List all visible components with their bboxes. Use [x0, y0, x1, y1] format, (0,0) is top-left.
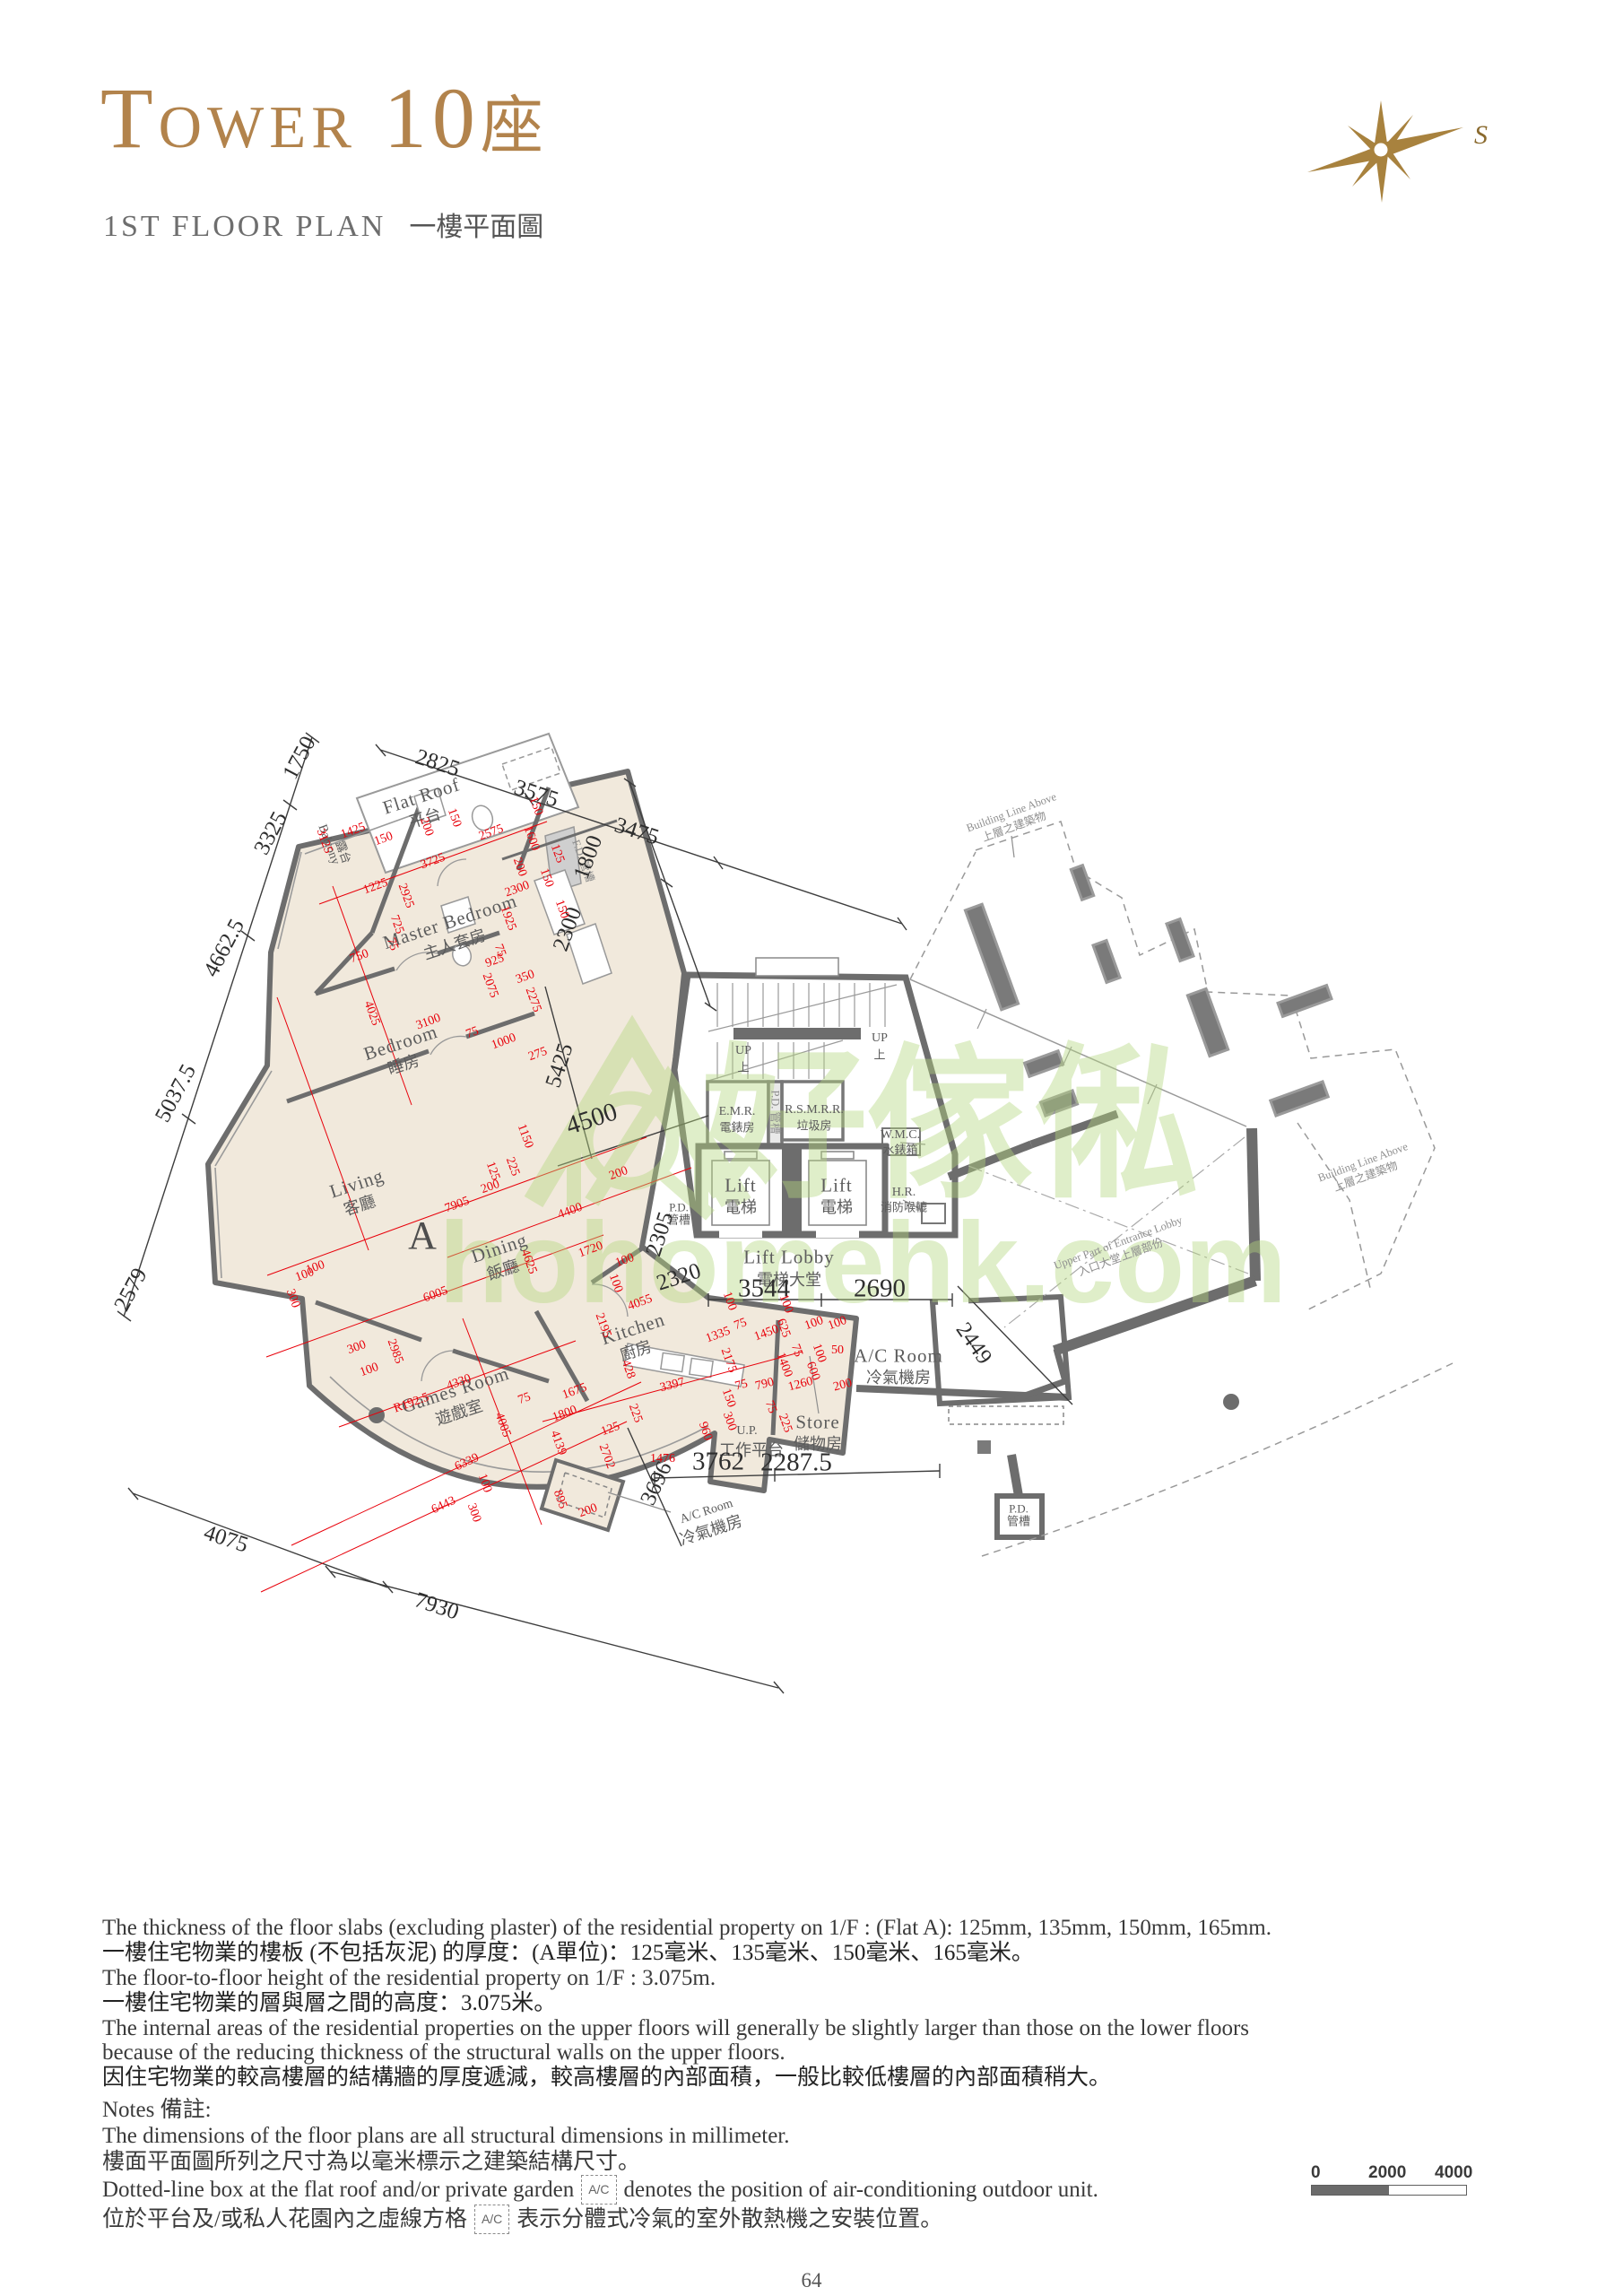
plan-label: 消防喉轆: [881, 1202, 927, 1213]
notes-legend-block: Notes 備註: The dimensions of the floor pl…: [102, 2097, 1304, 2234]
note-line: The floor-to-floor height of the residen…: [102, 1966, 1304, 1990]
plan-label: E.M.R.: [719, 1106, 756, 1118]
scale-tick-label: 4000: [1435, 2163, 1472, 2183]
plan-label: 100: [359, 1361, 381, 1379]
plan-label: 200: [480, 1178, 502, 1196]
plan-label: 100: [606, 1273, 624, 1295]
plan-label: P.D.: [669, 1202, 689, 1213]
plan-label: 1425: [339, 822, 367, 842]
note-line-ac-en: Dotted-line box at the flat roof and/or …: [102, 2175, 1304, 2205]
plan-label: 7905: [443, 1196, 471, 1216]
plan-label: 1750: [279, 733, 320, 783]
plan-label: H.R.: [892, 1187, 916, 1199]
plan-label: 2579: [110, 1265, 152, 1315]
plan-label: 3397: [659, 1377, 687, 1396]
plan-label: P.D. 管槽: [769, 1091, 781, 1135]
scale-tick-label: 0: [1311, 2163, 1321, 2183]
note-line: The internal areas of the residential pr…: [102, 2016, 1304, 2065]
plan-label: 300: [346, 1339, 369, 1357]
plan-label: 4075: [201, 1521, 250, 1556]
plan-label: 1000: [490, 1032, 517, 1053]
note-text: 位於平台及/或私人花園內之虛線方格: [102, 2207, 467, 2231]
plan-label: 225: [503, 1156, 521, 1178]
plan-label: 電錶房: [719, 1122, 754, 1134]
note-line: 一樓住宅物業的樓板 (不包括灰泥) 的厚度：(A單位)：125毫米、135毫米、…: [102, 1941, 1304, 1965]
scale-tick-label: 2000: [1368, 2163, 1406, 2183]
plan-label: 2075: [480, 971, 500, 999]
plan-label: 75: [733, 1378, 749, 1393]
plan-label: 4662.5: [200, 916, 248, 980]
plan-label: 上: [873, 1049, 885, 1061]
plan-label: 960: [696, 1421, 714, 1443]
plan-label: 2985: [385, 1337, 405, 1365]
plan-label: 1476: [650, 1453, 675, 1465]
note-text: Dotted-line box at the flat roof and/or …: [102, 2178, 574, 2202]
brochure-page: { "page": { "title_en": "Tower 10", "tit…: [0, 0, 1623, 2296]
plan-label: W.M.C.: [881, 1129, 920, 1142]
plan-label: 4400: [556, 1202, 584, 1222]
plan-label: 4005: [492, 1411, 513, 1439]
note-text: denotes the position of air-conditioning…: [624, 2178, 1098, 2202]
plan-label: 電梯: [820, 1199, 853, 1215]
page-number: 64: [0, 2269, 1623, 2292]
ac-legend-box: A/C: [474, 2205, 509, 2234]
note-line: The thickness of the floor slabs (exclud…: [102, 1916, 1304, 1940]
plan-label: 100: [720, 1291, 738, 1313]
note-line: The dimensions of the floor plans are al…: [102, 2123, 1304, 2149]
plan-label: 2175: [718, 1346, 739, 1374]
plan-label: 4625: [518, 1248, 539, 1275]
plan-label: 6443: [430, 1495, 457, 1518]
plan-label: 3475: [612, 813, 661, 848]
plan-label: 125: [548, 843, 566, 865]
plan-label: 4500: [563, 1099, 621, 1140]
plan-label: 5037.5: [152, 1061, 200, 1126]
scale-bar-fill: [1312, 2186, 1389, 2195]
plan-label: 300: [464, 1502, 482, 1525]
plan-label: 150: [445, 807, 463, 830]
plan-label: 3725: [419, 852, 447, 873]
plan-label: 2925: [395, 882, 416, 909]
plan-label: 2287.5: [760, 1450, 832, 1476]
note-line: 因住宅物業的較高樓層的結構牆的厚度遞減，較高樓層的內部面積，一般比較低樓層的內部…: [102, 2066, 1304, 2090]
plan-label: 垃圾房: [796, 1120, 831, 1132]
plan-label: 100: [777, 1293, 794, 1316]
plan-label: 1335: [704, 1326, 732, 1346]
plan-label: 3325: [250, 808, 291, 858]
plan-label: 2305: [642, 1209, 677, 1258]
plan-label: 2195: [593, 1311, 613, 1339]
note-text: 表示分體式冷氣的室外散熱機之安裝位置。: [516, 2207, 942, 2231]
plan-label: 200: [510, 857, 528, 879]
plan-label: 75: [788, 1343, 804, 1359]
plan-label: 275: [527, 1046, 550, 1064]
note-line: 樓面平面圖所列之尺寸為以毫米標示之建築結構尺寸。: [102, 2149, 1304, 2175]
plan-label: 100: [294, 1266, 317, 1284]
plan-label: 100: [475, 1473, 493, 1495]
plan-label: 100: [614, 1252, 637, 1270]
plan-label: 管槽: [1007, 1516, 1030, 1527]
plan-label: 75: [733, 1317, 749, 1333]
scale-bar-graphic: [1311, 2185, 1467, 2196]
plan-label: 2690: [854, 1276, 906, 1302]
plan-label: 150: [537, 867, 555, 890]
plan-label: 125: [600, 1421, 622, 1439]
plan-label: 350: [515, 969, 537, 987]
plan-label: 1225: [361, 877, 389, 898]
note-line: 一樓住宅物業的層與層之間的高度：3.075米。: [102, 1991, 1304, 2015]
plan-label: 2825: [412, 745, 462, 780]
plan-label: 100: [803, 1315, 826, 1333]
plan-label: 2300: [503, 880, 531, 900]
ac-legend-box: A/C: [581, 2175, 616, 2205]
plan-label: 225: [626, 1403, 644, 1425]
plan-label: 50: [831, 1344, 844, 1357]
plan-label: 750: [349, 948, 371, 966]
plan-label: UP: [735, 1045, 751, 1057]
plan-label: 75: [762, 1399, 778, 1415]
plan-label: 150: [552, 899, 570, 921]
plan-label: 電梯: [725, 1199, 757, 1215]
plan-label: R.S.M.R.R.: [785, 1104, 844, 1117]
plan-label: 2449: [951, 1318, 995, 1368]
plan-label: 冷氣機房: [866, 1370, 931, 1386]
plan-label: 2275: [523, 986, 543, 1013]
plan-label: 150: [719, 1387, 737, 1410]
plan-label: 3696: [637, 1458, 676, 1509]
plan-label: 75: [516, 1391, 533, 1407]
note-line-ac-zh: 位於平台及/或私人花園內之虛線方格A/C表示分體式冷氣的室外散熱機之安裝位置。: [102, 2205, 1304, 2234]
plan-label: 1260: [787, 1376, 815, 1395]
plan-label: P.D.: [1009, 1503, 1028, 1515]
plan-label: A/C Room: [854, 1347, 943, 1366]
plan-label: 上: [737, 1062, 749, 1074]
scale-bar: 0 2000 4000: [1311, 2163, 1490, 2196]
plan-label: Lift: [725, 1177, 757, 1196]
plan-label: 6005: [421, 1285, 449, 1306]
plan-label: Store: [795, 1413, 839, 1432]
plan-label: 300: [283, 1288, 301, 1310]
plan-label: 100: [827, 1315, 849, 1333]
plan-label: 200: [577, 1502, 600, 1520]
plan-label: 3762: [692, 1449, 744, 1475]
plan-label: U.P.: [736, 1425, 757, 1438]
plan-label: 1800: [551, 1405, 578, 1425]
plan-label: Lift Lobby: [743, 1248, 835, 1267]
plan-label: 1675: [560, 1382, 588, 1403]
plan-label: 7930: [412, 1588, 461, 1623]
plan-label: 1600: [521, 824, 542, 852]
plan-label: 水錶箱: [882, 1144, 917, 1156]
plan-label: 2702: [596, 1442, 617, 1470]
plan-label: 4025: [361, 999, 382, 1027]
plan-label: 1720: [577, 1240, 604, 1261]
plan-label: 200: [608, 1165, 630, 1183]
scale-bar-numbers: 0 2000 4000: [1311, 2163, 1490, 2183]
plan-label: 895: [551, 1489, 568, 1511]
plan-label: 4055: [626, 1293, 654, 1314]
plan-label: A: [408, 1216, 438, 1256]
plan-label: 428: [619, 1359, 637, 1381]
plan-label: 5425: [542, 1040, 577, 1090]
plan-label: 225: [776, 1413, 794, 1435]
plan-label: 4139: [548, 1429, 568, 1457]
plan-label: 1150: [515, 1123, 535, 1151]
plan-label: 6339: [453, 1452, 481, 1474]
plan-label: Lift: [820, 1177, 853, 1196]
plan-label: 150: [373, 831, 395, 848]
plan-label: 2320: [654, 1259, 703, 1294]
plan-label: UP: [872, 1032, 888, 1045]
plan-label: 300: [720, 1411, 738, 1433]
notes-block: The thickness of the floor slabs (exclud…: [102, 1916, 1304, 2091]
plan-label: 200: [832, 1378, 854, 1395]
plan-label: 2575: [477, 823, 505, 844]
plan-label: 75: [464, 1025, 481, 1041]
plan-label: 790: [754, 1377, 776, 1394]
notes-heading: Notes 備註:: [102, 2097, 1304, 2123]
